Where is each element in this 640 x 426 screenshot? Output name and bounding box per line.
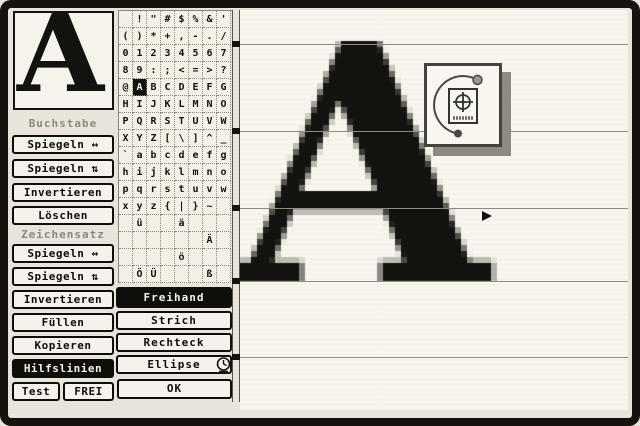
charset-cell[interactable]: s	[161, 181, 175, 198]
test-button[interactable]: Test	[12, 382, 60, 401]
charset-cell[interactable]: W	[217, 113, 231, 130]
charset-cell[interactable]: h	[119, 164, 133, 181]
guideline[interactable]	[240, 357, 628, 358]
charset-cell[interactable]	[203, 249, 217, 266]
charset-cell[interactable]	[217, 266, 231, 283]
charset-cell[interactable]: 7	[217, 45, 231, 62]
charset-cell[interactable]: {	[161, 198, 175, 215]
copy-button[interactable]: Kopieren	[12, 336, 114, 355]
charset-cell[interactable]: /	[217, 28, 231, 45]
charset-cell[interactable]: 1	[133, 45, 147, 62]
charset-cell[interactable]: L	[175, 96, 189, 113]
charset-cell[interactable]: X	[119, 130, 133, 147]
glyph-preview-box: A	[13, 11, 114, 110]
charset-cell[interactable]: v	[203, 181, 217, 198]
charset-cell[interactable]: +	[161, 28, 175, 45]
charset-cell[interactable]: j	[147, 164, 161, 181]
charset-cell[interactable]: u	[189, 181, 203, 198]
charset-cell[interactable]: ;	[161, 62, 175, 79]
tool-freehand-button[interactable]: Freihand	[116, 287, 232, 308]
clock-icon	[215, 356, 232, 377]
charset-cell[interactable]	[119, 249, 133, 266]
mirror-vertical-charset-button[interactable]: Spiegeln ⇅	[12, 267, 114, 286]
charset-cell[interactable]: ä	[175, 215, 189, 232]
charset-cell[interactable]	[189, 266, 203, 283]
charset-cell[interactable]	[119, 11, 133, 28]
charset-cell[interactable]	[217, 249, 231, 266]
charset-cell[interactable]: R	[147, 113, 161, 130]
charset-cell[interactable]: ^	[203, 130, 217, 147]
tool-line-button[interactable]: Strich	[116, 311, 232, 330]
charset-cell[interactable]	[189, 232, 203, 249]
charset-cell[interactable]: F	[203, 79, 217, 96]
charset-cell[interactable]	[217, 215, 231, 232]
charset-cell[interactable]: n	[203, 164, 217, 181]
charset-cell[interactable]: r	[147, 181, 161, 198]
charset-cell[interactable]: b	[147, 147, 161, 164]
charset-cell[interactable]: !	[133, 11, 147, 28]
guidelines-toggle-button[interactable]: Hilfslinien	[12, 359, 114, 378]
charset-cell[interactable]: P	[119, 113, 133, 130]
charset-cell[interactable]: 8	[119, 62, 133, 79]
charset-cell[interactable]: #	[161, 11, 175, 28]
crosshair-target-icon	[427, 66, 499, 144]
charset-cell[interactable]	[133, 249, 147, 266]
guideline-marker[interactable]	[232, 354, 240, 360]
guideline-marker[interactable]	[232, 205, 240, 211]
charset-cell[interactable]: T	[175, 113, 189, 130]
charset-cell[interactable]: c	[161, 147, 175, 164]
charset-cell[interactable]: &	[203, 11, 217, 28]
charset-cell[interactable]: M	[189, 96, 203, 113]
charset-cell[interactable]	[189, 215, 203, 232]
charset-cell[interactable]	[161, 249, 175, 266]
charset-cell[interactable]: @	[119, 79, 133, 96]
charset-cell[interactable]: ü	[133, 215, 147, 232]
charset-cell[interactable]	[147, 249, 161, 266]
charset-cell[interactable]: <	[175, 62, 189, 79]
glyph-preview: A	[17, 11, 104, 109]
guideline-marker[interactable]	[232, 128, 240, 134]
charset-cell[interactable]: a	[133, 147, 147, 164]
guideline[interactable]	[240, 281, 628, 282]
charset-cell[interactable]: g	[217, 147, 231, 164]
section-label-buchstabe: Buchstabe	[12, 117, 114, 130]
frei-button[interactable]: FREI	[63, 382, 114, 401]
charset-cell[interactable]: %	[189, 11, 203, 28]
guideline[interactable]	[240, 208, 628, 209]
charset-cell[interactable]: .	[203, 28, 217, 45]
charset-cell[interactable]: p	[119, 181, 133, 198]
charset-cell[interactable]: q	[133, 181, 147, 198]
mirror-horizontal-glyph-button[interactable]: Spiegeln ↔	[12, 135, 114, 154]
charset-cell[interactable]: Ö	[133, 266, 147, 283]
guideline-marker[interactable]	[232, 278, 240, 284]
guideline[interactable]	[240, 44, 628, 45]
charset-cell[interactable]	[189, 249, 203, 266]
charset-cell[interactable]	[161, 215, 175, 232]
charset-cell[interactable]: *	[147, 28, 161, 45]
charset-cell[interactable]	[161, 232, 175, 249]
invert-charset-button[interactable]: Invertieren	[12, 290, 114, 309]
charset-cell[interactable]: ]	[189, 130, 203, 147]
charset-cell[interactable]	[175, 232, 189, 249]
charset-cell[interactable]: U	[189, 113, 203, 130]
charset-cell[interactable]	[119, 215, 133, 232]
invert-glyph-button[interactable]: Invertieren	[12, 183, 114, 202]
charset-cell[interactable]: N	[203, 96, 217, 113]
charset-cell[interactable]: `	[119, 147, 133, 164]
charset-cell[interactable]: I	[133, 96, 147, 113]
charset-cell[interactable]: l	[175, 164, 189, 181]
charset-cell[interactable]: 4	[175, 45, 189, 62]
charset-cell[interactable]: V	[203, 113, 217, 130]
charset-cell[interactable]: 9	[133, 62, 147, 79]
charset-cell[interactable]	[133, 232, 147, 249]
charset-cell[interactable]	[217, 198, 231, 215]
edited-glyph-bitmap[interactable]	[240, 10, 521, 323]
charset-cell[interactable]: i	[133, 164, 147, 181]
charset-cell[interactable]	[161, 266, 175, 283]
charset-cell[interactable]	[203, 215, 217, 232]
charset-cell[interactable]: 2	[147, 45, 161, 62]
charset-cell[interactable]	[217, 232, 231, 249]
charset-cell[interactable]: 5	[189, 45, 203, 62]
mirror-vertical-glyph-button[interactable]: Spiegeln ⇅	[12, 159, 114, 178]
charset-cell[interactable]: )	[133, 28, 147, 45]
charset-cell[interactable]: k	[161, 164, 175, 181]
charset-cell[interactable]: E	[189, 79, 203, 96]
charset-cell[interactable]: Ü	[147, 266, 161, 283]
charset-cell[interactable]: z	[147, 198, 161, 215]
charset-cell[interactable]: $	[175, 11, 189, 28]
charset-cell[interactable]: o	[217, 164, 231, 181]
charset-cell[interactable]: ,	[175, 28, 189, 45]
charset-cell[interactable]: H	[119, 96, 133, 113]
charset-cell[interactable]: -	[189, 28, 203, 45]
charset-cell[interactable]: '	[217, 11, 231, 28]
charset-cell[interactable]: 0	[119, 45, 133, 62]
charset-cell[interactable]: x	[119, 198, 133, 215]
mirror-horizontal-charset-button[interactable]: Spiegeln ↔	[12, 244, 114, 263]
charset-cell[interactable]: Z	[147, 130, 161, 147]
charset-cell[interactable]: A	[133, 79, 147, 96]
guideline-marker[interactable]	[232, 41, 240, 47]
charset-cell[interactable]: Y	[133, 130, 147, 147]
font-editor-window: A Buchstabe Spiegeln ↔ Spiegeln ⇅ Invert…	[0, 0, 640, 426]
charset-cell[interactable]: K	[161, 96, 175, 113]
charset-cell[interactable]: d	[175, 147, 189, 164]
charset-cell[interactable]: m	[189, 164, 203, 181]
charset-cell[interactable]	[119, 266, 133, 283]
charset-cell[interactable]	[119, 232, 133, 249]
charset-grid: !"#$%&'()*+,-./0123456789:;<=>?@ABCDEFGH…	[118, 10, 232, 283]
charset-cell[interactable]: 6	[203, 45, 217, 62]
charset-cell[interactable]: G	[217, 79, 231, 96]
charset-cell[interactable]: w	[217, 181, 231, 198]
charset-cell[interactable]: _	[217, 130, 231, 147]
charset-cell[interactable]: D	[175, 79, 189, 96]
charset-cell[interactable]: >	[203, 62, 217, 79]
charset-cell[interactable]: y	[133, 198, 147, 215]
charset-cell[interactable]: B	[147, 79, 161, 96]
section-label-zeichensatz: Zeichensatz	[12, 228, 114, 241]
charset-cell[interactable]: "	[147, 11, 161, 28]
charset-cell[interactable]: =	[189, 62, 203, 79]
ok-button[interactable]: OK	[117, 379, 232, 399]
charset-cell[interactable]: \	[175, 130, 189, 147]
charset-cell[interactable]: ß	[203, 266, 217, 283]
charset-cell[interactable]: |	[175, 198, 189, 215]
clear-glyph-button[interactable]: Löschen	[12, 206, 114, 225]
charset-cell[interactable]	[175, 266, 189, 283]
tool-rectangle-button[interactable]: Rechteck	[116, 333, 232, 352]
floating-rotate-tool-button[interactable]	[424, 63, 502, 147]
charset-cell[interactable]	[147, 215, 161, 232]
mouse-cursor-icon	[482, 207, 493, 226]
charset-cell[interactable]: J	[147, 96, 161, 113]
charset-cell[interactable]: 3	[161, 45, 175, 62]
charset-cell[interactable]: }	[189, 198, 203, 215]
charset-cell[interactable]: f	[203, 147, 217, 164]
charset-cell[interactable]: t	[175, 181, 189, 198]
charset-cell[interactable]: :	[147, 62, 161, 79]
charset-cell[interactable]: Q	[133, 113, 147, 130]
charset-cell[interactable]	[147, 232, 161, 249]
charset-cell[interactable]: [	[161, 130, 175, 147]
charset-cell[interactable]: S	[161, 113, 175, 130]
charset-cell[interactable]: (	[119, 28, 133, 45]
charset-cell[interactable]: O	[217, 96, 231, 113]
charset-cell[interactable]: e	[189, 147, 203, 164]
charset-cell[interactable]: ö	[175, 249, 189, 266]
fill-button[interactable]: Füllen	[12, 313, 114, 332]
charset-cell[interactable]: ?	[217, 62, 231, 79]
charset-cell[interactable]: ~	[203, 198, 217, 215]
charset-cell[interactable]: C	[161, 79, 175, 96]
charset-cell[interactable]: Ä	[203, 232, 217, 249]
